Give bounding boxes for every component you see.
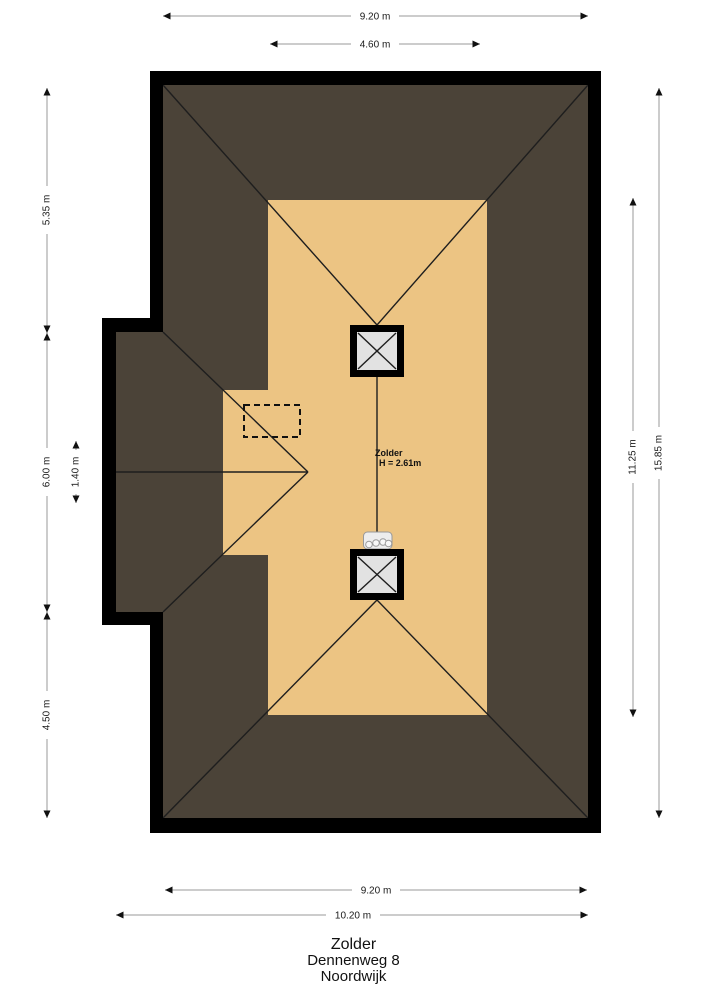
chimney-north	[350, 325, 404, 377]
dimension-left-middle: 6.00 m	[41, 333, 53, 612]
dimension-label: 1.40 m	[71, 457, 82, 488]
room-height-label: H = 2.61m	[379, 458, 421, 468]
room-name-label: Zolder	[375, 448, 403, 458]
title-city: Noordwijk	[0, 969, 707, 985]
dimension-bottom-width: 9.20 m	[165, 884, 587, 897]
dimension-label: 9.20 m	[361, 886, 392, 897]
floorplan-canvas: Zolder H = 2.61m 9.20 m 4.60 m 5.35 m 6.…	[0, 0, 707, 1000]
dimension-label: 5.35 m	[42, 195, 53, 226]
title-room-name: Zolder	[0, 936, 707, 953]
dimension-top-inner: 4.60 m	[270, 38, 480, 51]
dimension-label: 4.50 m	[42, 700, 53, 731]
dimension-label: 15.85 m	[654, 435, 665, 471]
dimension-left-inner: 1.40 m	[70, 441, 82, 503]
title-block: Zolder Dennenweg 8 Noordwijk	[0, 936, 707, 985]
vent-pot-icon	[373, 540, 380, 547]
dimension-right-total: 15.85 m	[653, 88, 665, 818]
dimension-left-lower: 4.50 m	[41, 612, 53, 818]
dimension-label: 4.60 m	[360, 40, 391, 51]
title-street-address: Dennenweg 8	[0, 953, 707, 969]
vent-pot-icon	[385, 540, 392, 547]
dimension-bottom-total: 10.20 m	[116, 909, 588, 922]
floorplan-drawing: Zolder H = 2.61m 9.20 m 4.60 m 5.35 m 6.…	[0, 0, 707, 1000]
vent-pot-icon	[366, 541, 373, 548]
dimension-label: 9.20 m	[360, 12, 391, 23]
dimension-label: 11.25 m	[628, 439, 639, 474]
dimension-left-upper: 5.35 m	[41, 88, 53, 333]
dimension-label: 6.00 m	[42, 457, 53, 488]
dimension-label: 10.20 m	[335, 911, 371, 922]
dimension-top-width: 9.20 m	[163, 10, 588, 23]
dimension-right-floor: 11.25 m	[627, 198, 639, 717]
